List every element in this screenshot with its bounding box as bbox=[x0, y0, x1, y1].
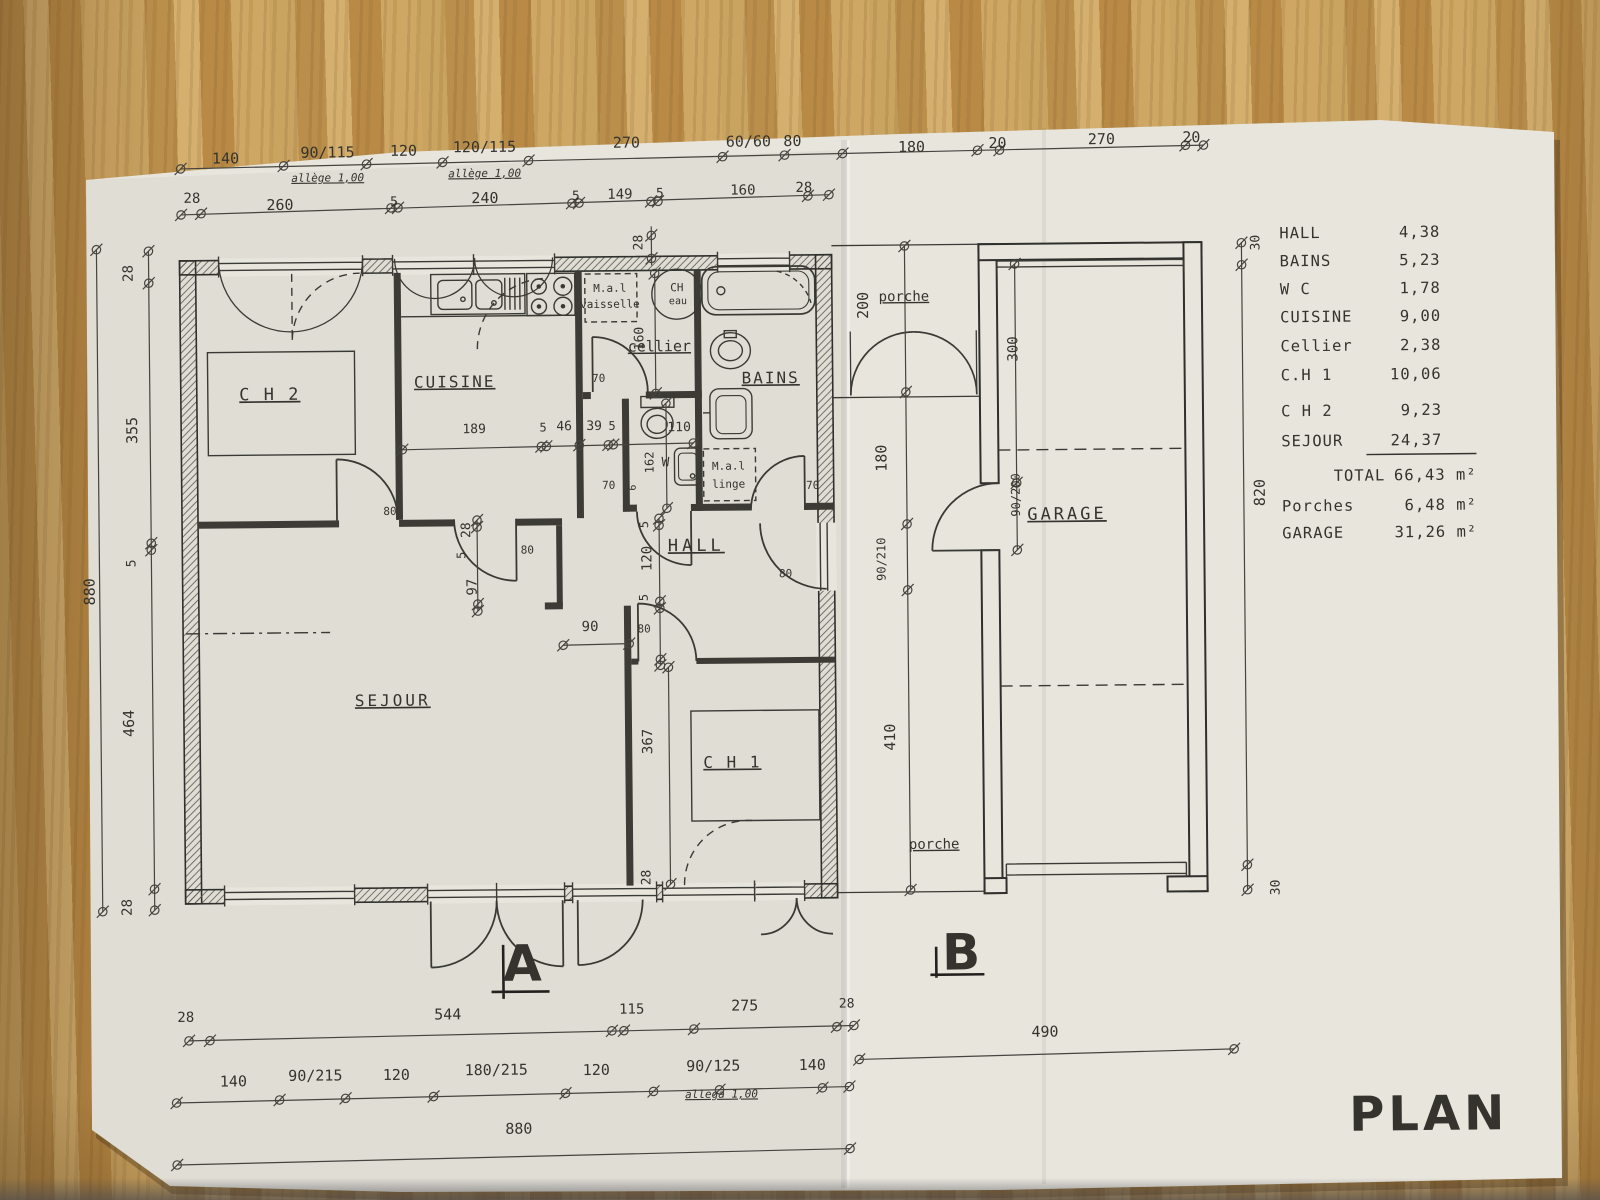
dim-80-door: 80 bbox=[637, 622, 650, 635]
room-label-cellier: cellier bbox=[628, 337, 691, 356]
dim-door-90-200: 90/200 bbox=[1009, 473, 1023, 516]
dim-490: 490 bbox=[1031, 1023, 1058, 1041]
dim-window-90-215: 90/215 bbox=[288, 1066, 342, 1085]
dim-410: 410 bbox=[881, 724, 899, 751]
dim-90-opening: 90 bbox=[582, 619, 599, 635]
dim-28: 28 bbox=[121, 265, 137, 282]
dim-240: 240 bbox=[471, 189, 498, 207]
dim-115: 115 bbox=[619, 1002, 644, 1018]
dim-46: 46 bbox=[556, 419, 572, 434]
legend-row-value: 2,38 bbox=[1400, 336, 1441, 354]
legend-row-label: SEJOUR bbox=[1281, 432, 1343, 451]
dim-28: 28 bbox=[839, 996, 855, 1011]
paper-crease-1 bbox=[841, 140, 847, 1188]
legend-row-label: TOTAL bbox=[1334, 466, 1386, 484]
room-label-cuisine: CUISINE bbox=[414, 372, 496, 392]
section-mark-b: B bbox=[942, 923, 981, 981]
dim-28: 28 bbox=[183, 191, 200, 207]
dim-28: 28 bbox=[120, 899, 136, 916]
floor-plan-sheet: 14090/115120120/11527060/60801802027020a… bbox=[0, 0, 1600, 1200]
dim-189: 189 bbox=[462, 422, 486, 437]
dim-30: 30 bbox=[1269, 880, 1284, 896]
dim-door-180-215: 180/215 bbox=[465, 1061, 528, 1080]
appliance-label-dishwasher-1: M.a.l bbox=[593, 282, 626, 295]
dim-200-porch: 200 bbox=[854, 292, 872, 319]
dim-149: 149 bbox=[607, 187, 632, 203]
dim-5: 5 bbox=[637, 521, 651, 528]
dim-door-90-210: 90/210 bbox=[874, 537, 888, 580]
room-label-sejour: SEJOUR bbox=[355, 691, 431, 711]
dim-260: 260 bbox=[266, 196, 293, 214]
dim-5: 5 bbox=[572, 189, 580, 204]
dim-5: 5 bbox=[124, 559, 139, 567]
dim-97: 97 bbox=[465, 579, 481, 596]
legend-row-value: 24,37 bbox=[1391, 431, 1443, 449]
dim-464: 464 bbox=[120, 710, 138, 737]
room-label-bains: BAINS bbox=[741, 368, 799, 388]
dim-544: 544 bbox=[434, 1005, 461, 1023]
appliance-label-dishwasher-2: vaisselle bbox=[580, 298, 640, 312]
appliance-label-waterheater-1: CH bbox=[670, 281, 683, 294]
dim-367: 367 bbox=[640, 729, 656, 754]
dim-162-wc: 162 bbox=[642, 452, 656, 474]
dim-120-top: 120 bbox=[390, 142, 417, 160]
dim-39: 39 bbox=[586, 419, 602, 434]
legend-row-label: HALL bbox=[1279, 224, 1320, 242]
legend-row-label: C.H 1 bbox=[1281, 366, 1333, 384]
dim-5: 5 bbox=[539, 420, 546, 434]
legend-row-label: W C bbox=[1280, 280, 1311, 298]
dim-70-cellier-door: 70 bbox=[592, 372, 605, 385]
legend-row-label: C H 2 bbox=[1281, 402, 1333, 420]
dim-355: 355 bbox=[123, 417, 141, 444]
dim-28: 28 bbox=[795, 180, 812, 196]
dim-5: 5 bbox=[637, 594, 651, 601]
legend-row-label: CUISINE bbox=[1280, 308, 1352, 327]
legend-row-value: 5,23 bbox=[1399, 251, 1440, 269]
legend-row-value: 1,78 bbox=[1399, 279, 1440, 297]
dim-5: 5 bbox=[656, 186, 664, 201]
dim-window-90-125: 90/125 bbox=[686, 1057, 740, 1076]
appliance-label-washer-1: M.a.l bbox=[712, 460, 745, 473]
legend-row-value: 6,48 m² bbox=[1405, 495, 1477, 514]
appliance-label-waterheater-2: eau bbox=[669, 296, 687, 307]
dim-110: 110 bbox=[667, 420, 691, 435]
legend-row-label: Porches bbox=[1282, 497, 1354, 516]
dim-20-garage-wall: 20 bbox=[988, 134, 1006, 152]
dim-5: 5 bbox=[454, 552, 468, 559]
legend-row-label: GARAGE bbox=[1282, 524, 1344, 543]
dim-28: 28 bbox=[459, 522, 474, 538]
dim-160: 160 bbox=[730, 182, 755, 198]
room-label-porche-top: porche bbox=[879, 289, 930, 305]
dim-880-left: 880 bbox=[81, 578, 99, 605]
dim-28: 28 bbox=[177, 1010, 194, 1026]
legend-row-value: 9,00 bbox=[1400, 307, 1441, 325]
dim-80-door: 80 bbox=[779, 567, 792, 580]
section-mark-a: A bbox=[503, 934, 543, 992]
dim-20-garage-wall2: 20 bbox=[1182, 128, 1200, 146]
note-allege-2: allège 1,00 bbox=[448, 167, 521, 181]
dim-300-garage: 300 bbox=[1005, 336, 1021, 361]
dim-140: 140 bbox=[799, 1056, 826, 1074]
dim-120-hall: 120 bbox=[639, 546, 655, 571]
plan-stamp: PLAN bbox=[1349, 1085, 1509, 1143]
room-label-hall: HALL bbox=[668, 536, 725, 557]
legend-row-value: 66,43 m² bbox=[1394, 465, 1477, 484]
dim-180-porch: 180 bbox=[898, 138, 925, 156]
dim-270-garage: 270 bbox=[1088, 130, 1115, 148]
dim-70-wc-door: 70 bbox=[602, 479, 615, 492]
note-allege-3: allega 1,00 bbox=[685, 1087, 758, 1101]
room-label-porche-bottom: porche bbox=[909, 836, 960, 852]
dim-270-top: 270 bbox=[613, 134, 640, 152]
dim-180-right: 180 bbox=[872, 445, 890, 472]
dim-window-120-115: 120/115 bbox=[453, 138, 516, 157]
dim-140: 140 bbox=[220, 1072, 247, 1090]
dim-5: 5 bbox=[390, 195, 398, 210]
room-label-ch1: C H 1 bbox=[703, 752, 761, 772]
dim-28: 28 bbox=[639, 870, 654, 886]
legend-row-value: 9,23 bbox=[1401, 401, 1442, 419]
dim-6: 6 bbox=[628, 485, 639, 491]
dim-140-top: 140 bbox=[212, 149, 239, 167]
dim-80-door: 80 bbox=[521, 544, 534, 557]
legend-row-label: BAINS bbox=[1279, 252, 1331, 270]
dim-820: 820 bbox=[1251, 479, 1269, 506]
legend-row-value: 10,06 bbox=[1390, 365, 1442, 383]
dim-30: 30 bbox=[1248, 235, 1263, 251]
dim-880-bottom: 880 bbox=[505, 1120, 532, 1138]
dim-window-90-115: 90/115 bbox=[300, 143, 354, 162]
appliance-label-washer-2: linge bbox=[712, 478, 745, 491]
legend-row-value: 4,38 bbox=[1399, 223, 1440, 241]
dim-80-top: 80 bbox=[783, 132, 801, 150]
room-label-ch2: C H 2 bbox=[239, 385, 300, 406]
dim-70-bains-door: 70 bbox=[806, 479, 819, 492]
dim-5: 5 bbox=[608, 419, 615, 433]
dim-28-wall: 28 bbox=[631, 235, 646, 251]
room-label-wc: W bbox=[661, 455, 669, 470]
dim-275: 275 bbox=[731, 996, 758, 1014]
legend-row-label: Cellier bbox=[1280, 337, 1352, 356]
note-allege-1: allège 1,00 bbox=[291, 171, 364, 185]
dim-120: 120 bbox=[583, 1061, 610, 1079]
dim-120: 120 bbox=[383, 1066, 410, 1084]
dim-80-door: 80 bbox=[383, 505, 396, 518]
legend-row-value: 31,26 m² bbox=[1394, 522, 1477, 541]
dim-window-60-60: 60/60 bbox=[726, 132, 771, 150]
room-label-garage: GARAGE bbox=[1027, 504, 1107, 525]
